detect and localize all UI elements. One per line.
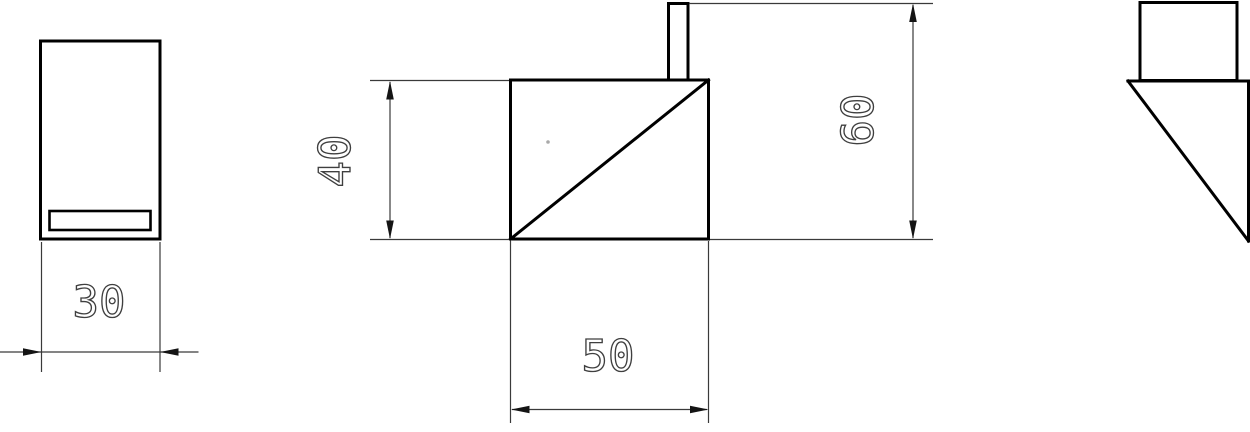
- front-view-slot: [50, 211, 151, 230]
- dim-50-label: 50: [582, 331, 635, 382]
- drawing-svg: 30 40: [0, 0, 1250, 432]
- technical-drawing-canvas: 30 40: [0, 0, 1250, 432]
- iso-view: [1128, 3, 1249, 242]
- front-view-outline: [41, 41, 161, 239]
- iso-view-triangle-hypotenuse: [1128, 81, 1249, 241]
- vertex-marker-dot: [546, 140, 550, 144]
- dim-40-arrowhead-top: [386, 81, 394, 100]
- front-view: 30: [0, 41, 199, 372]
- dimension-50: 50: [511, 241, 709, 423]
- dim-30-arrowhead-left: [23, 348, 42, 355]
- dimension-40: 40: [310, 81, 509, 240]
- side-view-tab: [669, 4, 689, 81]
- dim-30-arrowhead-right: [160, 348, 179, 355]
- dim-50-arrowhead-left: [511, 406, 530, 413]
- dimension-60: 60: [689, 4, 933, 240]
- dim-60-arrowhead-top: [909, 4, 917, 23]
- iso-view-top-rectangle: [1140, 3, 1237, 81]
- side-view: 40 50 60: [310, 4, 933, 424]
- dim-60-arrowhead-bottom: [909, 221, 917, 240]
- dimension-30: 30: [0, 242, 199, 372]
- dim-40-arrowhead-bottom: [386, 221, 394, 240]
- dim-40-label: 40: [310, 135, 361, 188]
- dim-30-label: 30: [73, 277, 126, 328]
- dim-60-label: 60: [833, 94, 884, 147]
- dim-50-arrowhead-right: [690, 406, 709, 413]
- side-view-diagonal: [511, 80, 709, 239]
